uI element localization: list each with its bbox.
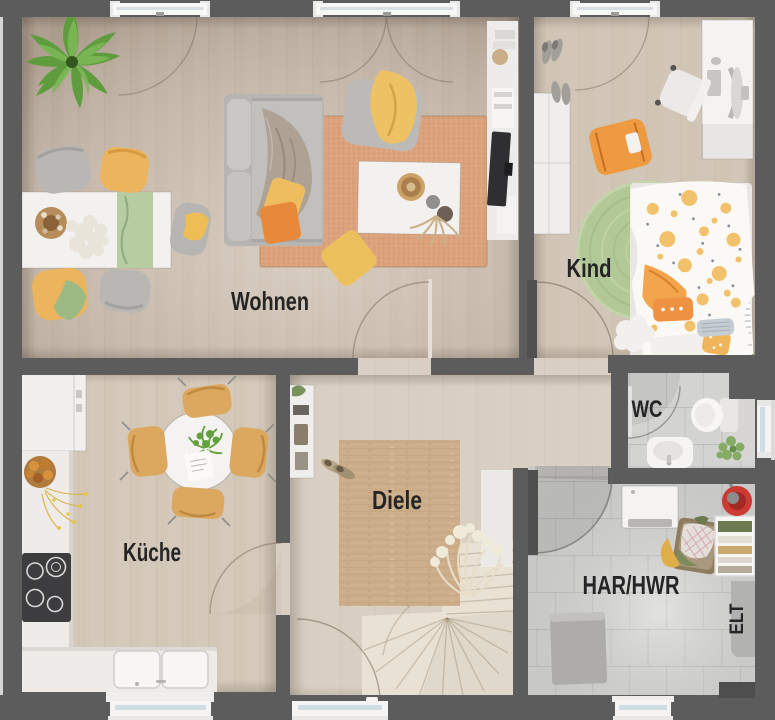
svg-text:Wohnen: Wohnen <box>231 286 309 316</box>
svg-text:HAR/HWR: HAR/HWR <box>583 570 680 600</box>
svg-text:Diele: Diele <box>372 485 422 515</box>
svg-text:ELT: ELT <box>727 603 748 634</box>
svg-text:Kind: Kind <box>567 253 612 283</box>
svg-text:WC: WC <box>632 396 663 423</box>
svg-text:Küche: Küche <box>123 537 181 567</box>
